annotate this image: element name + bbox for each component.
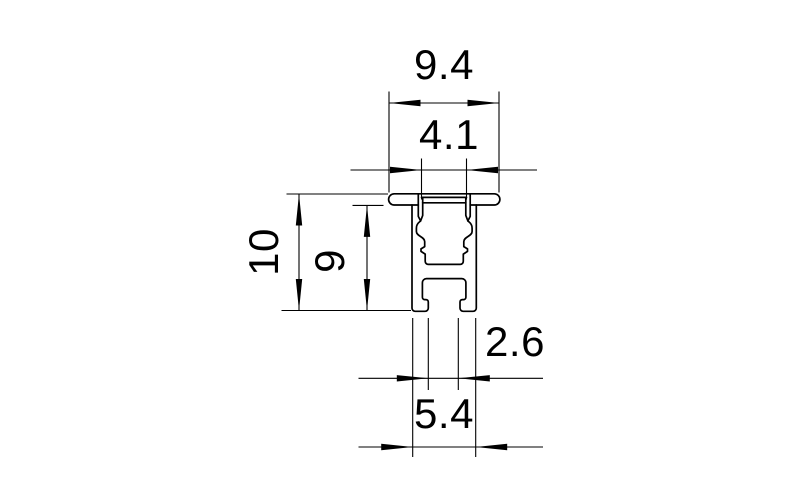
arrowhead-4-1-left bbox=[390, 167, 422, 173]
arrowhead-9-bottom bbox=[364, 279, 370, 311]
dimension-base-width bbox=[359, 444, 544, 450]
dim-label-top-recess-width: 4.1 bbox=[419, 114, 479, 156]
arrowhead-9-4-left bbox=[389, 100, 421, 106]
arrowhead-5-4-right bbox=[476, 444, 508, 450]
dim-label-groove-opening-width: 2.6 bbox=[485, 321, 545, 363]
dimension-body-height bbox=[353, 205, 384, 310]
arrowhead-4-1-right bbox=[467, 167, 499, 173]
arrowhead-10-top bbox=[296, 194, 302, 226]
profile-right-leg-outer bbox=[468, 195, 470, 221]
dim-label-overall-height: 10 bbox=[243, 228, 285, 276]
profile-left-leg-outer bbox=[418, 195, 420, 221]
dim-label-body-height: 9 bbox=[309, 249, 351, 273]
profile-drawing-svg bbox=[0, 0, 808, 500]
arrowhead-10-bottom bbox=[296, 279, 302, 311]
technical-drawing-canvas: 9.4 4.1 10 9 2.6 5.4 bbox=[0, 0, 808, 500]
dim-label-cap-width: 9.4 bbox=[414, 44, 474, 86]
arrowhead-5-4-left bbox=[381, 444, 413, 450]
dim-label-base-width: 5.4 bbox=[414, 393, 474, 435]
profile-inner-cavity-outline bbox=[416, 221, 472, 265]
arrowhead-9-4-right bbox=[468, 100, 500, 106]
profile-left-leg-inner bbox=[421, 197, 423, 221]
profile-body-outline bbox=[412, 205, 476, 311]
arrowhead-2-6-right bbox=[458, 375, 490, 381]
profile-cross-section bbox=[389, 194, 500, 311]
profile-right-leg-inner bbox=[466, 197, 468, 221]
arrowhead-9-top bbox=[364, 205, 370, 237]
